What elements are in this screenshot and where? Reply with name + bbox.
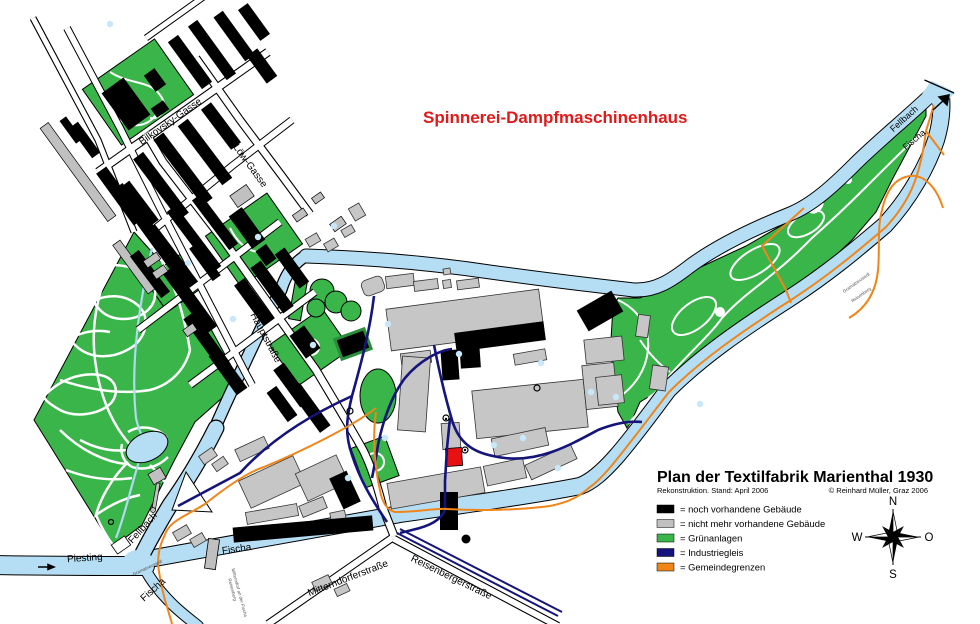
- svg-text:Rekonstruktion. Stand: April 2: Rekonstruktion. Stand: April 2006: [657, 486, 768, 495]
- svg-text:S: S: [889, 569, 897, 581]
- svg-text:W: W: [852, 532, 863, 544]
- svg-text:= nicht mehr vorhandene Gebäud: = nicht mehr vorhandene Gebäude: [680, 518, 825, 529]
- svg-text:N: N: [889, 496, 897, 508]
- svg-text:Spinnerei-Dampfmaschinenhaus: Spinnerei-Dampfmaschinenhaus: [423, 108, 688, 127]
- svg-text:= Gemeindegrenzen: = Gemeindegrenzen: [680, 562, 765, 573]
- svg-text:O: O: [925, 532, 934, 544]
- svg-text:= Grünanlagen: = Grünanlagen: [680, 533, 742, 544]
- svg-text:Plan der Textilfabrik Marienth: Plan der Textilfabrik Marienthal 1930: [657, 469, 933, 486]
- svg-text:= noch vorhandene Gebäude: = noch vorhandene Gebäude: [680, 504, 802, 515]
- svg-text:© Reinhard Müller, Graz 2006: © Reinhard Müller, Graz 2006: [829, 486, 928, 495]
- svg-text:= Industriegleis: = Industriegleis: [680, 547, 744, 558]
